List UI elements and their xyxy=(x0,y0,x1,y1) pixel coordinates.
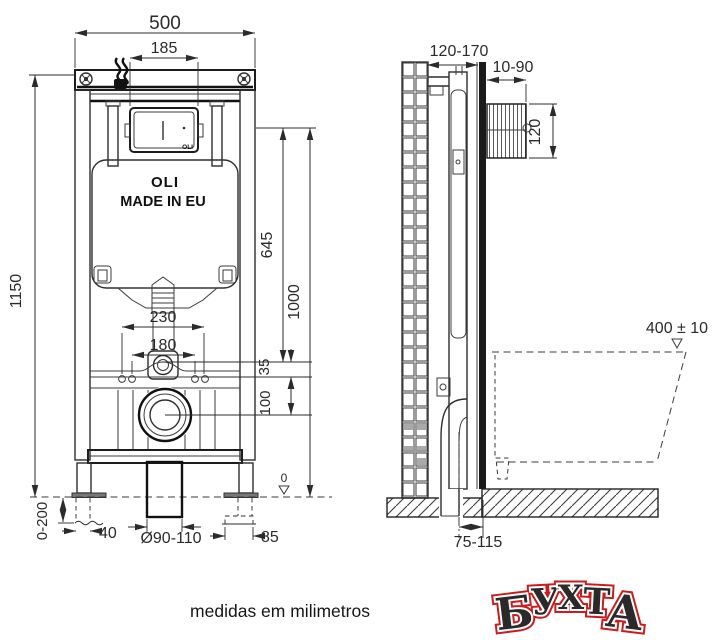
svg-text:Х: Х xyxy=(558,578,585,618)
cistern-profile xyxy=(451,90,466,338)
dim-plate-width: 185 xyxy=(130,40,198,106)
left-leg xyxy=(77,463,91,493)
side-view: 120-170 10-90 120 400 ± 10 xyxy=(387,43,708,551)
flush-plate: OLI xyxy=(125,108,203,152)
bowl-fixing-pocket xyxy=(496,458,509,479)
dim-drain-axis: 100 xyxy=(257,377,291,416)
side-dimensions: 120-170 10-90 120 400 ± 10 xyxy=(427,43,708,551)
installation-diagram: OLI OLI MADE IN EU xyxy=(0,0,718,640)
datum-triangle-icon xyxy=(672,339,682,348)
dim-drain-diameter: Ø90-110 xyxy=(128,519,202,547)
watermark-logo: Б У Х Т А Б У Х Т А xyxy=(492,578,647,640)
front-view: OLI OLI MADE IN EU xyxy=(8,13,332,547)
svg-text:400 ± 10: 400 ± 10 xyxy=(646,320,708,337)
made-in-label: MADE IN EU xyxy=(120,194,205,210)
dim-fixing-span-inner: 180 xyxy=(132,337,195,374)
pan-fixing-bracket xyxy=(437,378,450,396)
corrugated-sleeve xyxy=(487,104,531,158)
dim-bracket-depth: 85 xyxy=(210,498,279,546)
svg-text:100: 100 xyxy=(257,390,274,415)
dim-top-edge-height: 1000 xyxy=(286,128,310,497)
wall-bracket xyxy=(428,77,449,95)
tank-corner-clip xyxy=(94,266,111,283)
watermark-core-layer: Б У Х Т А xyxy=(492,578,647,640)
svg-text:120-170: 120-170 xyxy=(430,43,489,60)
dim-inlet-offset: 35 xyxy=(256,349,291,390)
svg-text:120: 120 xyxy=(527,119,544,146)
toilet-bowl-outline xyxy=(492,352,686,479)
svg-text:1150: 1150 xyxy=(8,274,25,309)
svg-text:0: 0 xyxy=(281,471,288,485)
svg-text:35: 35 xyxy=(256,359,273,376)
outlet-cap xyxy=(152,277,174,293)
technical-drawing-page: OLI OLI MADE IN EU xyxy=(0,0,718,640)
tank-corner-clip xyxy=(219,266,236,283)
dim-bowl-height: 400 ± 10 xyxy=(646,320,708,348)
finished-wall xyxy=(479,62,486,489)
svg-text:10-90: 10-90 xyxy=(493,59,534,76)
valve-mechanism xyxy=(453,150,464,174)
svg-text:40: 40 xyxy=(99,525,117,542)
svg-text:1000: 1000 xyxy=(286,284,303,320)
caption: medidas em milimetros xyxy=(190,601,370,621)
right-leg xyxy=(239,463,253,493)
supply-hose-icon xyxy=(114,58,128,89)
drain-elbow-inner xyxy=(459,417,467,497)
corner-screw-icon xyxy=(80,73,92,85)
frame-left-column xyxy=(75,90,90,460)
dim-plate-axis-height: 645 xyxy=(259,128,283,362)
drain-elbow xyxy=(441,399,467,497)
svg-text:500: 500 xyxy=(149,13,181,34)
svg-text:645: 645 xyxy=(259,232,276,259)
brick-wall xyxy=(402,62,428,498)
frame-right-column xyxy=(240,90,255,460)
svg-text:Ø90-110: Ø90-110 xyxy=(140,530,201,547)
adjustable-feet xyxy=(72,463,258,498)
dim-install-depth: 120-170 xyxy=(427,43,488,65)
svg-text:85: 85 xyxy=(261,529,279,546)
frame-profile xyxy=(437,66,467,497)
corner-screw-icon xyxy=(238,73,250,85)
svg-text:0-200: 0-200 xyxy=(34,502,51,540)
front-dimensions: 500 185 1150 645 xyxy=(8,13,316,547)
svg-text:У: У xyxy=(530,580,561,623)
svg-text:А: А xyxy=(603,583,647,640)
datum-triangle-icon xyxy=(279,486,289,494)
floor-datum-marker: 0 xyxy=(279,471,289,494)
svg-text:75-115: 75-115 xyxy=(454,534,503,551)
svg-text:230: 230 xyxy=(150,309,177,326)
tank-brand-label: OLI xyxy=(151,174,179,191)
drain-pipe xyxy=(147,462,182,517)
right-rail xyxy=(212,106,222,166)
plate-marker-dot xyxy=(183,127,186,130)
svg-text:185: 185 xyxy=(151,40,178,57)
svg-text:180: 180 xyxy=(150,337,177,354)
dim-overall-height: 1150 xyxy=(8,75,76,497)
plate-brand-label: OLI xyxy=(182,144,193,151)
dim-finish-thickness: 10-90 xyxy=(487,59,534,102)
dim-feet-adjust: 0-200 xyxy=(34,498,103,540)
left-rail xyxy=(108,106,118,166)
dim-foot-width: 40 xyxy=(62,525,117,542)
dim-sleeve-height: 120 xyxy=(527,104,557,158)
